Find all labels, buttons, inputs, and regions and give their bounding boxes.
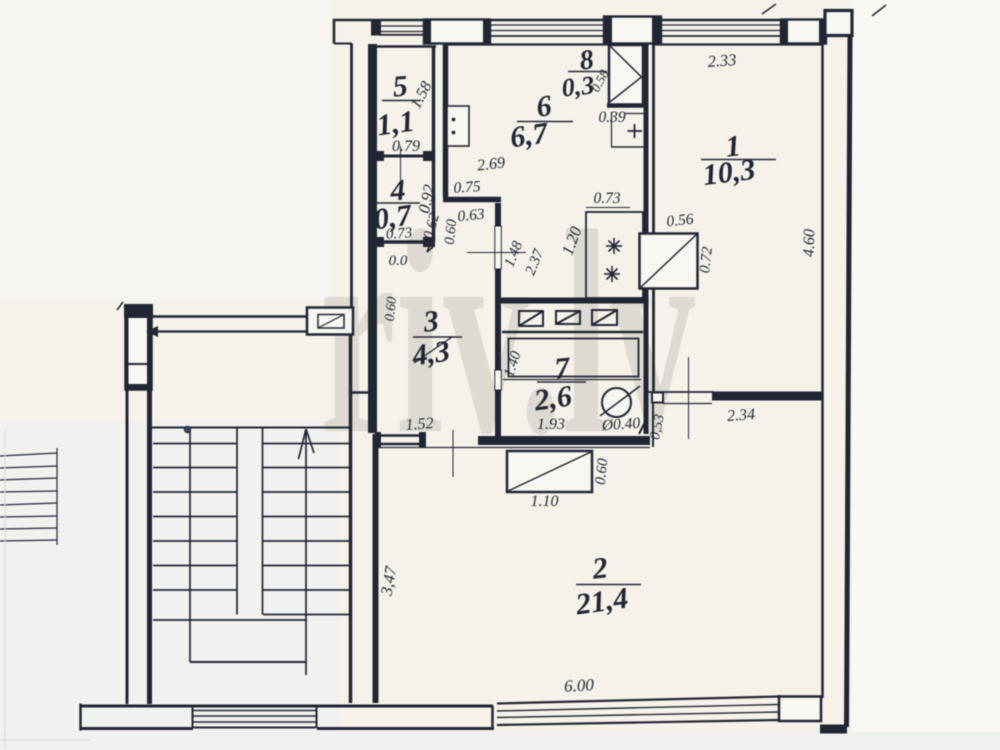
svg-text:10,3: 10,3	[701, 153, 757, 192]
svg-text:2,6: 2,6	[531, 380, 574, 418]
svg-text:0.73: 0.73	[385, 225, 412, 243]
svg-text:0.73: 0.73	[593, 190, 620, 207]
svg-text:0.56: 0.56	[666, 211, 695, 231]
svg-text:1,1: 1,1	[375, 105, 417, 143]
svg-text:0.72: 0.72	[697, 246, 716, 275]
svg-text:0.0: 0.0	[389, 253, 408, 269]
svg-text:0.60: 0.60	[593, 457, 612, 485]
svg-text:0.60: 0.60	[383, 296, 400, 322]
svg-text:4.60: 4.60	[801, 229, 818, 257]
svg-text:2.33: 2.33	[707, 50, 737, 71]
svg-text:6,7: 6,7	[508, 116, 551, 154]
svg-text:0.63: 0.63	[457, 206, 486, 226]
svg-text:1.52: 1.52	[405, 415, 434, 434]
svg-text:5: 5	[391, 69, 409, 103]
svg-text:0.79: 0.79	[392, 138, 420, 155]
svg-text:1.10: 1.10	[531, 493, 559, 510]
svg-text:Ø0.40: Ø0.40	[600, 415, 641, 435]
svg-text:2.69: 2.69	[476, 154, 506, 174]
svg-text:4,3: 4,3	[409, 335, 452, 373]
svg-text:0.75: 0.75	[453, 178, 481, 197]
svg-text:6.00: 6.00	[564, 675, 595, 696]
svg-text:0.60: 0.60	[442, 218, 461, 246]
svg-text:2.34: 2.34	[726, 406, 755, 425]
svg-text:0.39: 0.39	[598, 109, 625, 126]
svg-text:1.93: 1.93	[537, 416, 565, 433]
